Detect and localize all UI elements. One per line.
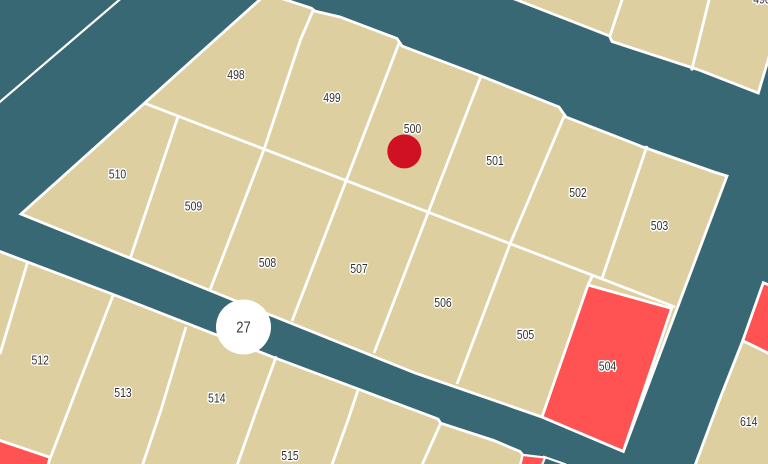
svg-text:505: 505 — [517, 327, 535, 342]
svg-text:498: 498 — [227, 67, 245, 82]
svg-text:504: 504 — [599, 359, 617, 374]
svg-text:509: 509 — [185, 199, 203, 214]
svg-text:501: 501 — [486, 153, 504, 168]
svg-text:500: 500 — [404, 121, 422, 136]
svg-text:490: 490 — [753, 0, 768, 7]
svg-text:515: 515 — [281, 448, 299, 463]
svg-text:512: 512 — [31, 353, 49, 368]
svg-text:506: 506 — [434, 295, 452, 310]
svg-text:513: 513 — [114, 385, 132, 400]
svg-text:614: 614 — [740, 414, 758, 429]
svg-text:508: 508 — [259, 255, 277, 270]
svg-text:499: 499 — [323, 90, 341, 105]
svg-text:510: 510 — [109, 167, 127, 182]
svg-text:27: 27 — [236, 320, 251, 337]
svg-text:507: 507 — [350, 261, 368, 276]
svg-text:502: 502 — [569, 185, 587, 200]
svg-text:503: 503 — [651, 218, 669, 233]
svg-text:514: 514 — [208, 390, 226, 405]
